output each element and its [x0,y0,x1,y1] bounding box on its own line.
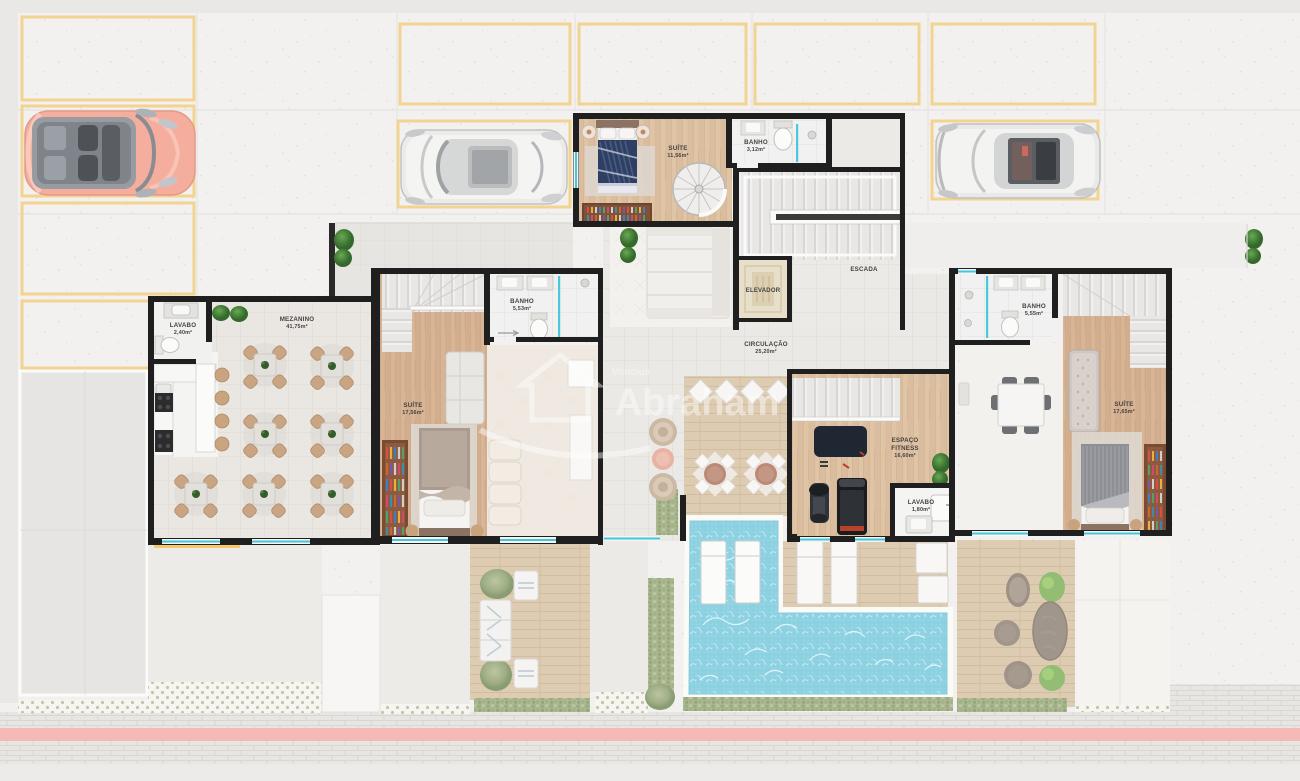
svg-text:BANHO: BANHO [744,139,768,146]
svg-text:FITNESS: FITNESS [891,445,919,452]
svg-text:BANHO: BANHO [510,298,534,305]
svg-text:17,56m²: 17,56m² [402,410,423,416]
svg-text:1,80m²: 1,80m² [912,507,930,513]
svg-text:SUÍTE: SUÍTE [403,401,422,409]
svg-text:11,56m²: 11,56m² [667,153,688,159]
svg-text:25,20m²: 25,20m² [755,349,776,355]
svg-text:ELEVADOR: ELEVADOR [746,288,781,294]
svg-text:MEZANINO: MEZANINO [280,316,315,323]
svg-text:SUÍTE: SUÍTE [1114,400,1133,408]
svg-text:CIRCULAÇÃO: CIRCULAÇÃO [744,341,788,348]
svg-text:16,60m²: 16,60m² [894,453,915,459]
svg-text:LAVABO: LAVABO [908,499,934,506]
svg-text:Abraham: Abraham [615,382,780,424]
svg-text:5,53m²: 5,53m² [513,306,531,312]
svg-text:41,75m²: 41,75m² [286,324,307,330]
svg-text:5,55m²: 5,55m² [1025,311,1043,317]
svg-text:3,12m²: 3,12m² [747,147,765,153]
svg-text:2,40m²: 2,40m² [174,330,192,336]
svg-text:ESPAÇO: ESPAÇO [892,437,919,444]
svg-text:Vinícius: Vinícius [612,367,651,378]
svg-text:SUÍTE: SUÍTE [668,144,687,152]
svg-text:BANHO: BANHO [1022,303,1046,310]
svg-text:LAVABO: LAVABO [170,322,196,329]
svg-text:17,65m²: 17,65m² [1113,409,1134,415]
svg-text:ESCADA: ESCADA [850,266,878,273]
